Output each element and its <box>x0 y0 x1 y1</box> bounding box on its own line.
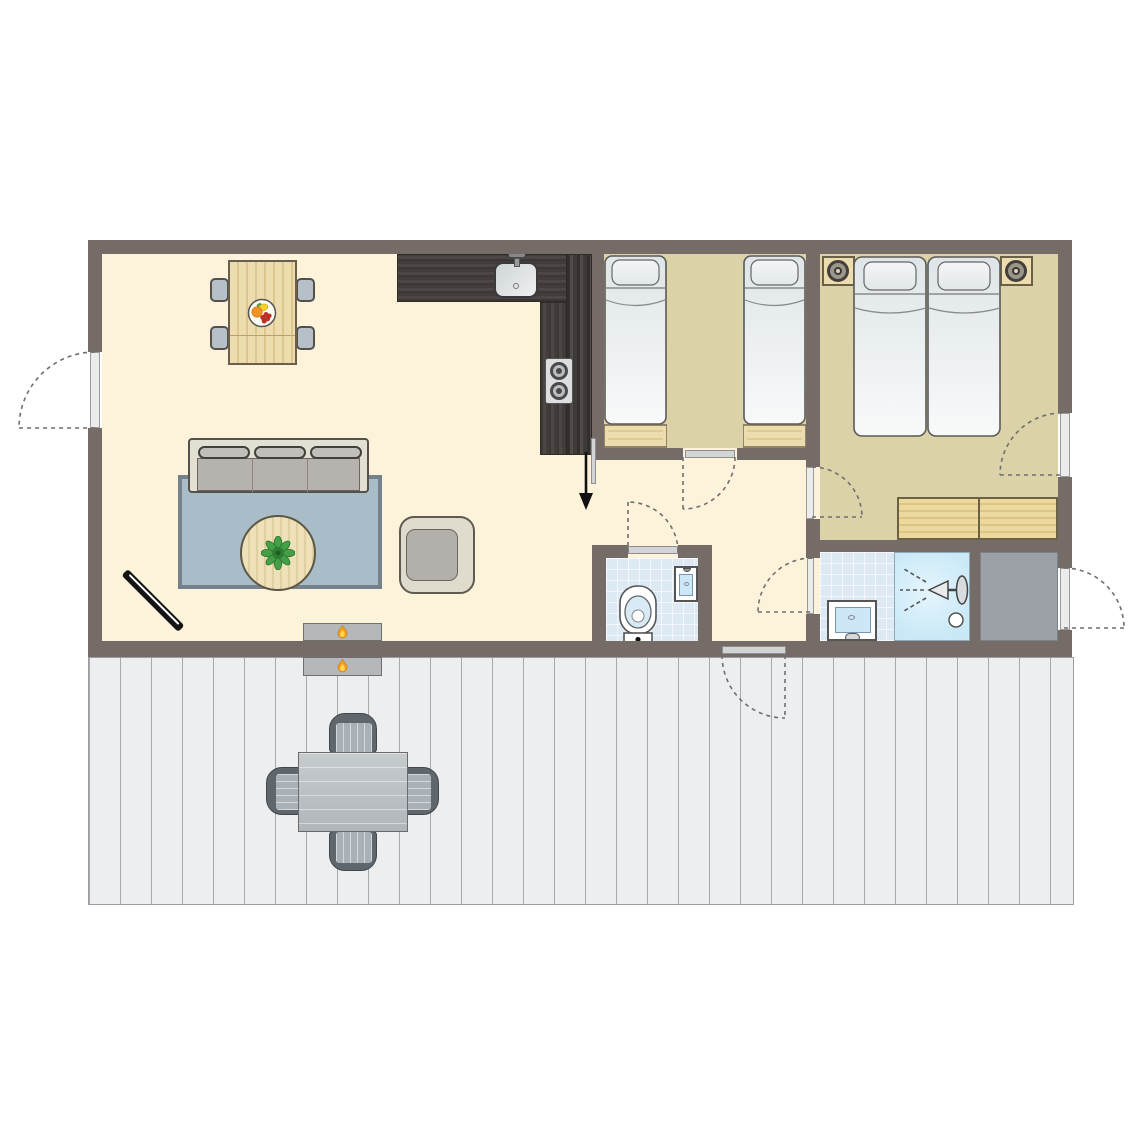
wall-bottom <box>88 641 1072 657</box>
storage-door <box>1060 568 1070 630</box>
sofa <box>188 438 369 493</box>
wall-toilet-left <box>592 545 606 641</box>
faucet-icon <box>683 568 691 572</box>
outdoor-table <box>298 752 408 832</box>
dining-chair <box>210 278 229 302</box>
sink-drain-icon <box>513 283 519 289</box>
dining-chair <box>210 326 229 350</box>
wall-double-bath <box>820 540 1058 552</box>
floor-plan <box>0 0 1145 1145</box>
wall-top <box>88 240 1072 254</box>
outdoor-chair <box>329 713 377 753</box>
wall-twin-hall <box>592 448 683 460</box>
wall-toilet-right <box>698 545 712 641</box>
wall-hall-double <box>806 448 820 467</box>
terrace-deck <box>88 657 1074 905</box>
toilet <box>616 585 660 647</box>
twin-bedroom-door <box>685 450 735 458</box>
wall-living-twin <box>592 254 604 450</box>
flame-icon <box>336 625 349 640</box>
shower-head-icon <box>894 552 970 641</box>
wall-left <box>88 240 102 352</box>
storage-room-floor <box>980 552 1058 641</box>
armchair-seat <box>406 529 458 581</box>
bathroom-door <box>807 558 814 614</box>
sofa-cushion <box>254 446 306 459</box>
dining-chair <box>296 278 315 302</box>
wall-toilet-top <box>592 545 628 558</box>
double-bed <box>853 256 1001 438</box>
dresser <box>897 497 1058 540</box>
wall-right <box>1058 240 1072 413</box>
outdoor-chair <box>329 831 377 871</box>
deck-door <box>722 646 786 654</box>
kitchen-sink <box>494 262 538 298</box>
dining-chair <box>296 326 315 350</box>
faucet-icon <box>845 633 860 640</box>
faucet-stem <box>514 258 520 267</box>
toilet-door <box>628 546 678 554</box>
single-bed <box>604 255 667 448</box>
single-bed <box>743 255 806 448</box>
sofa-cushion <box>198 446 250 459</box>
wall-right <box>1058 630 1072 657</box>
stove-burner-icon <box>550 382 568 400</box>
sofa-seat <box>197 458 360 491</box>
kitchen-tall-cabinet <box>566 254 592 455</box>
toilet-hand-basin <box>674 566 698 602</box>
plant-icon <box>261 536 295 570</box>
wall-twin-double <box>806 254 820 448</box>
double-bedroom-door <box>806 467 814 519</box>
entrance-door <box>90 352 100 428</box>
drain-icon <box>848 615 855 620</box>
fruit-bowl-icon <box>247 298 277 328</box>
wall-left <box>88 428 102 657</box>
washbasin <box>827 600 877 641</box>
lamp-icon <box>1005 260 1027 282</box>
wall-hall-double <box>806 519 820 558</box>
wall-shower-storage <box>970 552 980 641</box>
entrance-arrow-icon <box>578 452 594 510</box>
armchair <box>399 516 475 594</box>
double-bedroom-terrace-door <box>1060 413 1070 477</box>
wall-right <box>1058 477 1072 568</box>
stove-burner-icon <box>550 362 568 380</box>
wall-hall-bath <box>806 614 820 641</box>
lamp-icon <box>827 260 849 282</box>
drain-icon <box>684 582 689 586</box>
flame-icon <box>336 659 349 674</box>
sofa-cushion <box>310 446 362 459</box>
table-seam <box>230 335 295 336</box>
